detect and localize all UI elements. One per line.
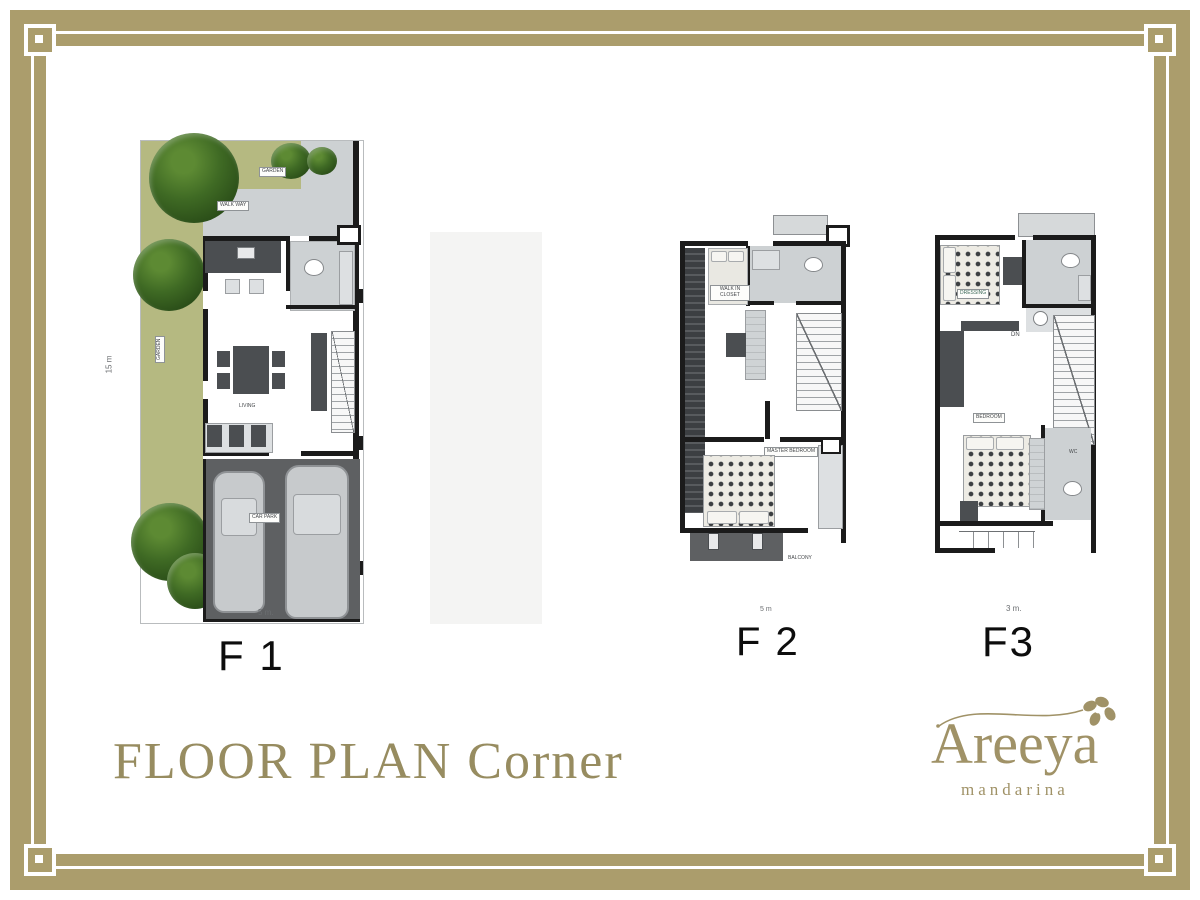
dimension-f2-width: 5 m [760, 606, 772, 613]
ac-ledge [773, 215, 828, 235]
chair [217, 351, 230, 367]
chair [272, 373, 285, 389]
pillow [739, 511, 769, 524]
shower [752, 250, 780, 270]
tree [307, 147, 337, 175]
closet-column [745, 310, 766, 380]
balcony [690, 533, 783, 561]
wall [1022, 240, 1026, 308]
room-label-carpark: CAR PARK [249, 513, 280, 523]
wall [935, 521, 1053, 526]
wall [680, 437, 764, 442]
wall [746, 301, 774, 305]
toilet-icon [1063, 481, 1082, 496]
room-label-dressing: DRESSING [957, 289, 989, 299]
chair [217, 373, 230, 389]
sofa-cushion [207, 425, 222, 447]
wall [796, 301, 846, 305]
room-label-wc: WC [1067, 449, 1079, 457]
bathroom-lower [1045, 428, 1091, 520]
room-label-balcony: BALCONY [786, 555, 814, 563]
frame-corner-ornament-top-right [1144, 24, 1176, 56]
service-box [337, 225, 361, 245]
wall-pier [357, 436, 363, 450]
wall [203, 309, 208, 381]
floorplan-f1: GARDEN WALK WAY GARDEN LIVING CAR PARK [140, 140, 364, 624]
room-label-garden-side: GARDEN [155, 336, 165, 363]
car [285, 465, 349, 619]
tv-cabinet [311, 333, 327, 411]
dimension-f1-width: 5 m. [258, 608, 274, 617]
wall [765, 401, 770, 439]
bath-counter [1078, 275, 1091, 301]
stool [225, 279, 240, 294]
ac-ledge [1018, 213, 1095, 237]
wall [680, 241, 748, 246]
tree [133, 239, 205, 311]
wardrobe-bar [961, 321, 1019, 331]
wall [301, 451, 357, 456]
room-label-walkin: WALK IN CLOSET [710, 285, 750, 301]
wardrobe-block [940, 331, 964, 407]
wall-pier [357, 289, 363, 303]
room-label-walkway: WALK WAY [217, 201, 249, 211]
washer-icon [1033, 311, 1048, 326]
wall [286, 305, 356, 309]
pillow [707, 511, 737, 524]
stairs [1053, 315, 1095, 445]
plan-label-f1: F 1 [218, 632, 285, 680]
sofa-cushion [229, 425, 244, 447]
page-title: FLOOR PLAN Corner [113, 732, 624, 791]
sofa-cushion [251, 425, 266, 447]
pillow [943, 247, 956, 273]
pillow [711, 251, 727, 262]
brand-subname: mandarina [961, 780, 1069, 800]
car [213, 471, 265, 613]
closet-column [1029, 438, 1045, 510]
dresser [960, 501, 978, 521]
balcony-railing [959, 531, 1035, 548]
dimension-f3-width: 3 m. [1006, 604, 1022, 613]
wardrobe [685, 248, 705, 513]
scan-ghost-artifact [430, 232, 542, 624]
pillow [996, 437, 1024, 450]
floor-plan-poster: GARDEN WALK WAY GARDEN LIVING CAR PARK 5… [0, 0, 1200, 900]
stool [249, 279, 264, 294]
stairs [331, 331, 355, 433]
room-label-bedroom: BEDROOM [973, 413, 1005, 423]
balcony-post [708, 533, 719, 550]
brand-logo: Areeya mandarina [925, 692, 1125, 822]
frame-corner-ornament-top-left [24, 24, 56, 56]
dining-table [233, 346, 269, 394]
frame-corner-ornament-bottom-right [1144, 844, 1176, 876]
bath-nook [818, 445, 843, 529]
room-label-garden-top: GARDEN [259, 167, 286, 177]
plan-label-f3: F3 [982, 618, 1035, 666]
kitchen-sink-icon [237, 247, 255, 259]
frame-corner-ornament-bottom-left [24, 844, 56, 876]
bath-counter [339, 251, 353, 305]
floorplan-f2: WALK IN CLOSET MASTER BEDROOM BALCONY [678, 213, 850, 565]
pillow [966, 437, 994, 450]
floorplan-f3: DRESSING DN BEDROOM WC [933, 213, 1103, 563]
stairs [796, 313, 842, 411]
balcony-post [752, 533, 763, 550]
brand-name: Areeya [931, 710, 1098, 777]
wall [286, 236, 290, 291]
wall [935, 548, 995, 553]
wall [935, 235, 1015, 240]
pillow [728, 251, 744, 262]
plan-label-f2: F 2 [736, 620, 800, 665]
dresser [726, 333, 746, 357]
service-box [821, 438, 841, 454]
toilet-icon [1061, 253, 1080, 268]
room-label-living: LIVING [237, 403, 257, 411]
room-label-dn: DN [1009, 331, 1022, 340]
toilet-icon [304, 259, 324, 276]
dimension-f1-height: 15 m [104, 356, 113, 374]
pillow [943, 275, 956, 301]
toilet-icon [804, 257, 823, 272]
chair [272, 351, 285, 367]
